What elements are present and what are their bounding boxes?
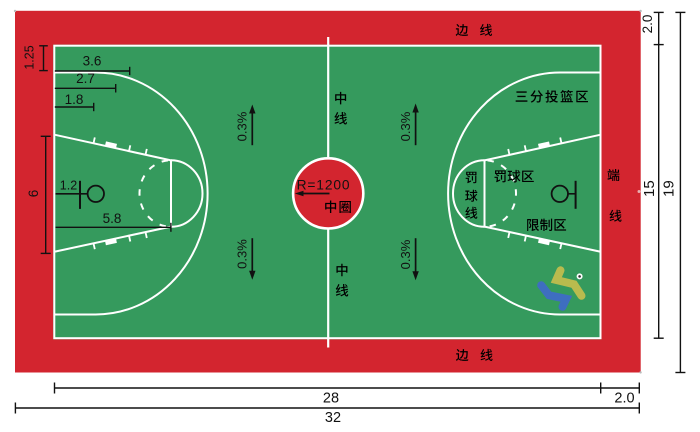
svg-text:2.0: 2.0 bbox=[640, 15, 655, 34]
svg-text:19: 19 bbox=[661, 180, 678, 197]
svg-text:1.2: 1.2 bbox=[60, 179, 77, 193]
svg-text:0.3%: 0.3% bbox=[398, 239, 413, 269]
svg-text:2.0: 2.0 bbox=[614, 391, 634, 407]
svg-text:28: 28 bbox=[323, 390, 339, 406]
svg-text:15: 15 bbox=[641, 180, 658, 197]
svg-text:1.8: 1.8 bbox=[65, 92, 84, 107]
svg-text:5.8: 5.8 bbox=[103, 211, 122, 226]
svg-text:R=1200: R=1200 bbox=[297, 178, 351, 193]
svg-text:3.6: 3.6 bbox=[83, 53, 102, 68]
svg-text:0.3%: 0.3% bbox=[235, 239, 250, 269]
svg-text:1.25: 1.25 bbox=[22, 45, 36, 69]
svg-text:6: 6 bbox=[26, 190, 41, 198]
svg-text:0.3%: 0.3% bbox=[398, 111, 413, 141]
svg-text:32: 32 bbox=[325, 410, 341, 426]
svg-text:2.7: 2.7 bbox=[76, 71, 95, 86]
svg-text:0.3%: 0.3% bbox=[235, 111, 250, 141]
